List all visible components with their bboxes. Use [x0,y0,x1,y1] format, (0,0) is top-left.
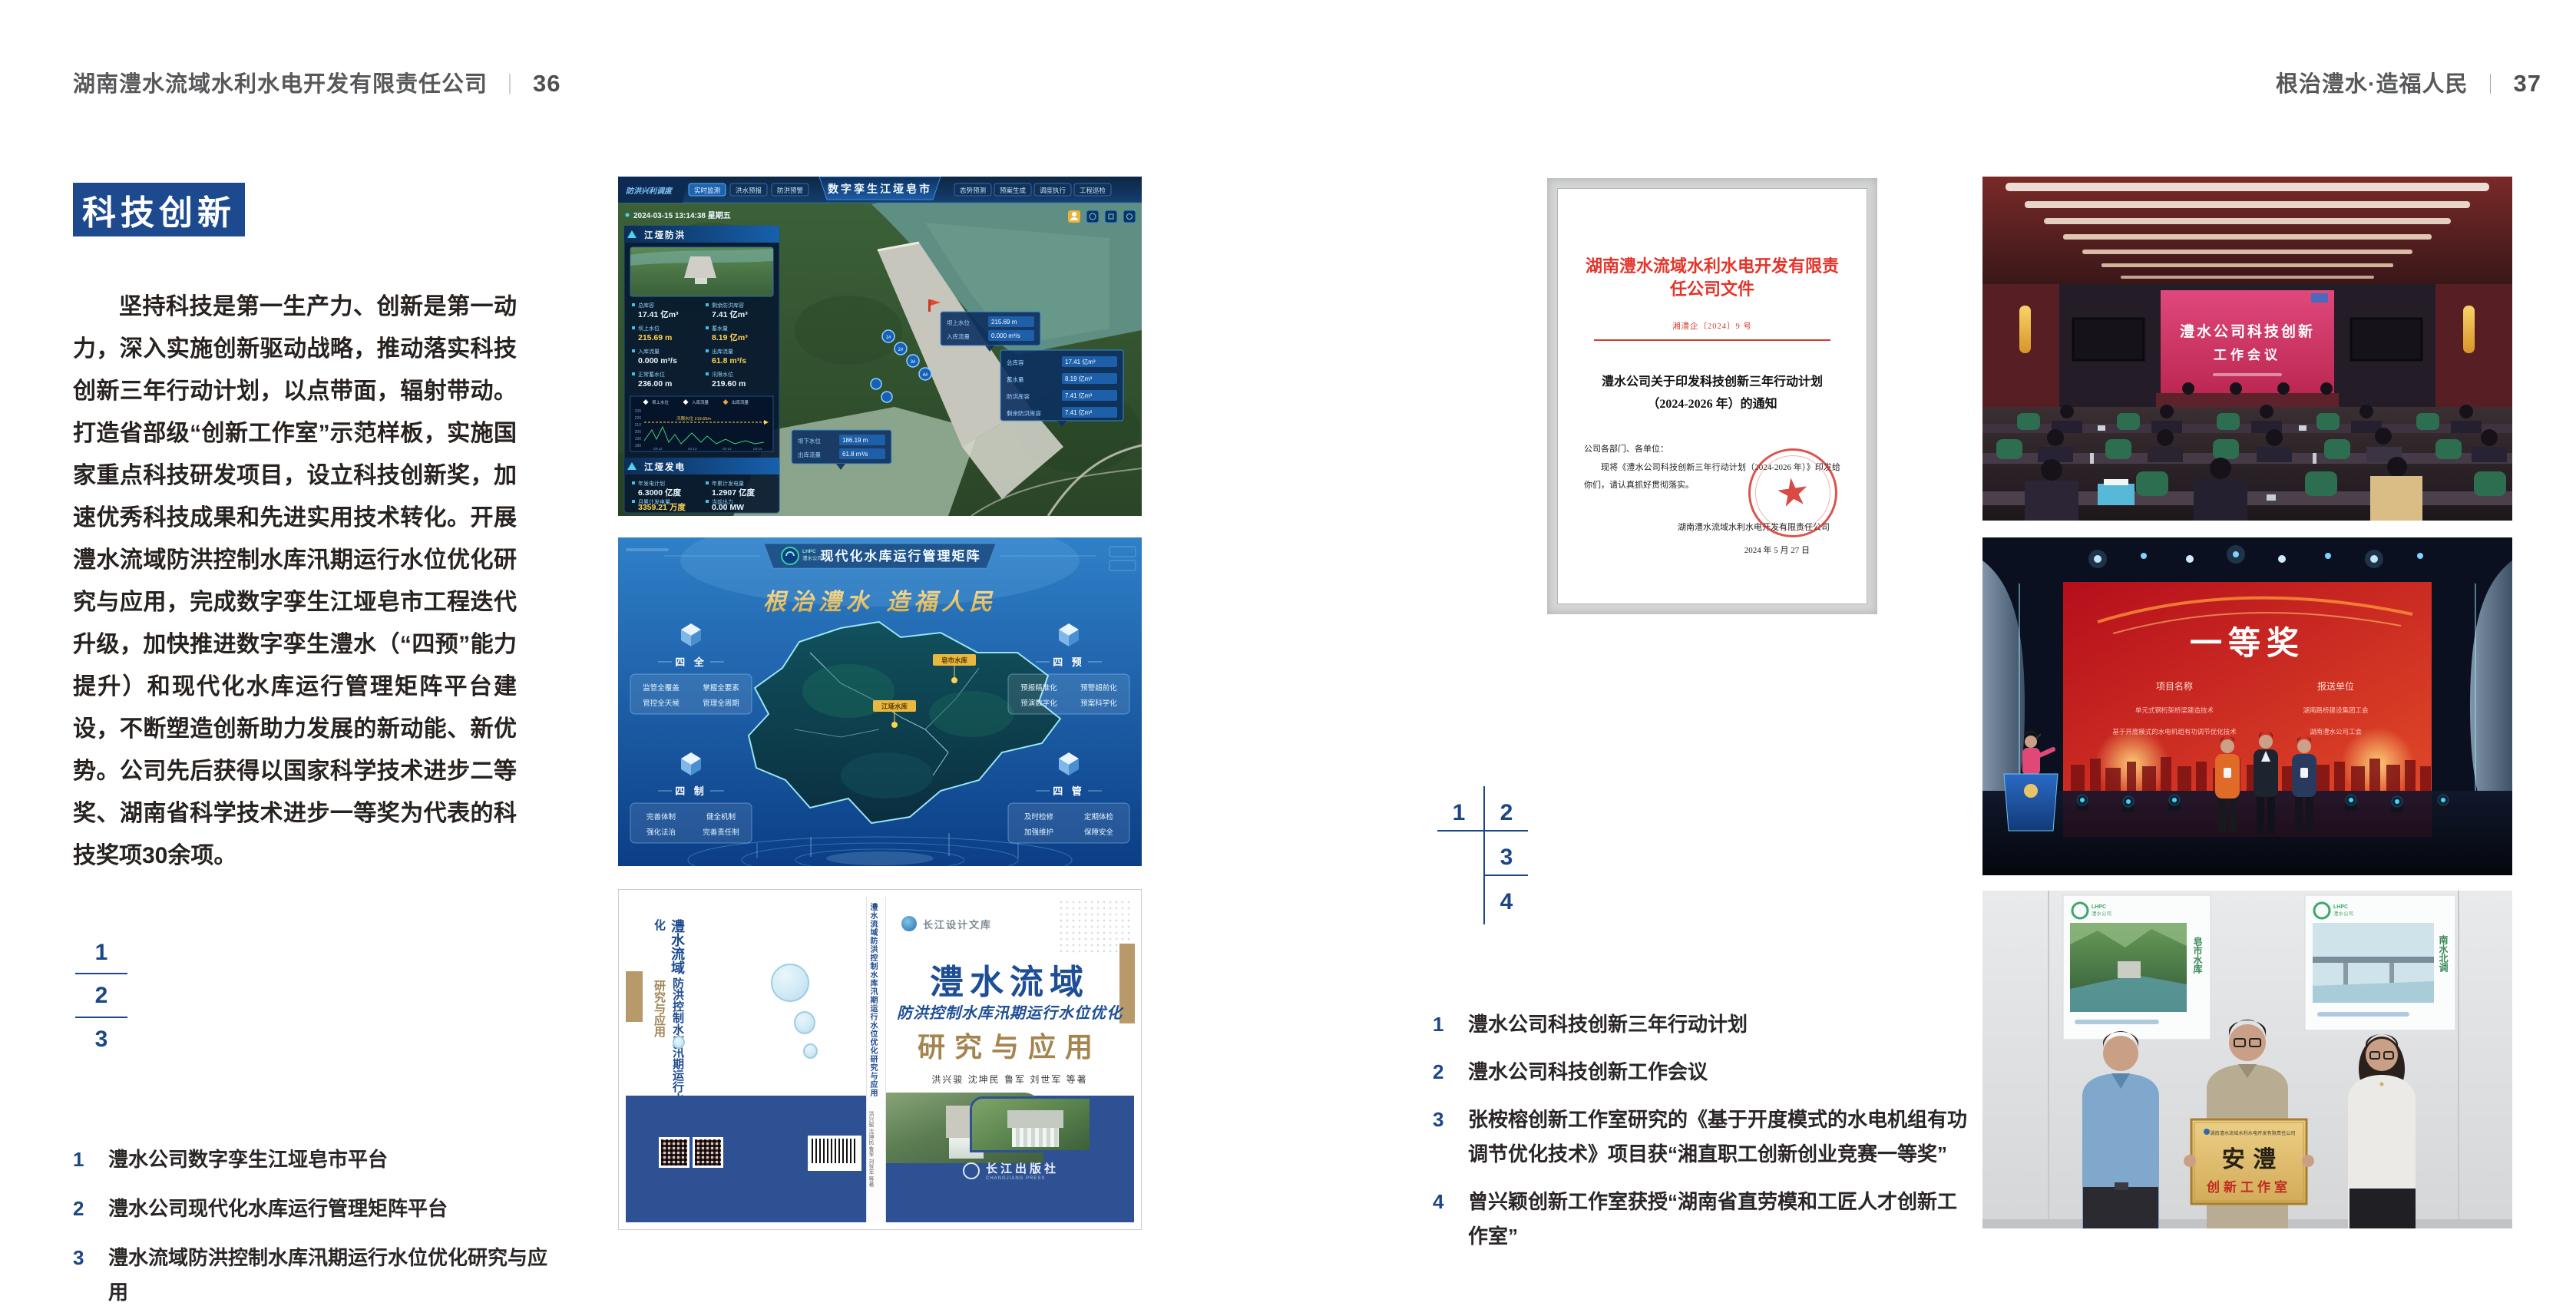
svg-text:工程巡检: 工程巡检 [1080,187,1106,194]
svg-text:江垭水库: 江垭水库 [881,703,908,710]
svg-text:皂市水库: 皂市水库 [941,656,968,664]
wall-tv [2073,319,2144,360]
svg-text:4#: 4# [923,373,928,378]
caption-text: 澧水公司数字孪生江垭皂市平台 [108,1142,388,1177]
caption-text: 澧水公司科技创新工作会议 [1468,1055,1708,1089]
svg-text:出库流量: 出库流量 [798,451,821,458]
svg-text:03-14: 03-14 [753,447,762,451]
bubble-decoration [803,1043,818,1059]
svg-text:监管全覆盖: 监管全覆盖 [643,683,680,693]
wall-sconce [2019,306,2031,353]
qr-code [693,1137,723,1168]
document-title-line1: 澧水公司关于印发科技创新三年行动计划 [1584,372,1840,394]
bubble-decoration [794,1011,815,1034]
svg-text:220: 220 [635,416,642,421]
svg-text:190: 190 [635,437,642,441]
book-title: 澧水流域 [886,954,1133,1003]
bubble-decoration [771,964,809,1002]
svg-text:61.8 m³/s: 61.8 m³/s [842,451,868,458]
svg-text:四 预: 四 预 [1053,656,1085,668]
caption-row: 1澧水公司科技创新三年行动计划 [1433,1007,1970,1042]
caption-row: 2澧水公司现代化水库运行管理矩阵平台 [73,1192,564,1226]
svg-text:剩余防洪库容: 剩余防洪库容 [712,302,744,309]
svg-text:蓄水量: 蓄水量 [1007,375,1024,383]
poster-left: LHPC 澧水公司 皂市水库 [2063,895,2211,1040]
caption-row: 2澧水公司科技创新工作会议 [1433,1055,1970,1089]
figure-number: 2 [95,983,108,1008]
svg-text:预演数字化: 预演数字化 [1020,699,1057,708]
spine-authors: 洪兴骏 沈坤民 鲁军 刘世军 等著 [867,1103,875,1187]
svg-text:200: 200 [635,430,642,435]
svg-text:完善责任制: 完善责任制 [703,828,739,837]
svg-text:1#: 1# [886,336,891,340]
tab-project-inspection[interactable]: 工程巡检 [1074,184,1111,196]
caption-row: 4曾兴颖创新工作室获授“湖南省直劳模和工匠人才创新工作室” [1433,1185,1970,1254]
figure-conference-photo: 澧水公司科技创新 工作会议 [1982,177,2512,521]
svg-text:6.3000 亿度: 6.3000 亿度 [638,488,682,498]
caption-text: 澧水公司科技创新三年行动计划 [1468,1007,1748,1042]
document-date: 2024 年 5 月 27 日 [1584,544,1840,556]
figure-matrix-platform: LHPC 澧水公司 现代化水库运行管理矩阵 根治澧水 造福人民 皂市水库 [618,537,1142,866]
svg-text:坝上水位: 坝上水位 [638,325,660,332]
caption-number: 1 [73,1142,93,1177]
publisher-logo-icon [963,1162,980,1179]
svg-text:总库容: 总库容 [1007,359,1024,366]
svg-text:完善体制: 完善体制 [646,812,676,822]
downstream-tooltip: 坝下水位 186.19 m 出库流量 61.8 m³/s [792,430,891,470]
svg-text:坝上水位: 坝上水位 [947,319,970,326]
dashboard-title: 数字孪生江垭皂市 [828,183,932,195]
caption-number: 3 [73,1241,93,1306]
plaque-subtitle: 创新工作室 [2206,1179,2291,1195]
column-header-project: 项目名称 [2156,680,2193,692]
svg-text:汛限水位 219.60m: 汛限水位 219.60m [676,415,711,422]
svg-text:2024-03-15 13:14:38 星期五: 2024-03-15 13:14:38 星期五 [633,210,731,220]
matrix-logo: LHPC [802,549,816,554]
svg-text:预警超前化: 预警超前化 [1080,683,1117,693]
poster-left-title: 皂市水库 [2192,936,2203,974]
matrix-title: 现代化水库运行管理矩阵 [821,548,981,564]
svg-text:236.00 m: 236.00 m [638,379,672,388]
poster-logo: LHPC [2333,904,2348,910]
svg-text:215.69 m: 215.69 m [991,319,1017,326]
header-separator: ｜ [2481,73,2502,96]
svg-text:四 全: 四 全 [675,656,707,668]
publisher-name: 长江出版社 [986,1160,1059,1176]
svg-text:洪水预报: 洪水预报 [736,187,762,194]
dashboard-header-bar: 防洪兴利调度 数字孪生江垭皂市 实时监测 洪水预报 防洪预警 态势预测 预案生成… [618,177,1142,203]
screen-title-line1: 澧水公司科技创新 [2180,322,2315,340]
document-title-line2: （2024-2026 年）的通知 [1584,394,1840,416]
publisher-logo: 长江出版社 CHANGJIANG PRESS [963,1160,1059,1181]
figure-official-document: 湖南澧水流域水利水电开发有限责任公司文件 湘澧企〔2024〕9 号 澧水公司关于… [1547,178,1877,614]
tab-plan-generation[interactable]: 预案生成 [994,184,1031,196]
figure-number: 3 [95,1027,108,1052]
svg-text:蓄水量: 蓄水量 [712,325,728,332]
tissue-box [2098,484,2135,505]
barcode [808,1136,861,1171]
poster-logo-sub: 澧水公司 [2092,910,2111,917]
cover-photo-spillway-dam [972,1099,1090,1150]
svg-text:出库流量: 出库流量 [712,348,733,355]
svg-text:03-12: 03-12 [653,447,663,451]
svg-text:保障安全: 保障安全 [1084,828,1114,837]
svg-text:180: 180 [635,444,642,448]
figure-plaque-photo: LHPC 澧水公司 皂市水库 LHPC 澧水公司 南水北调 [1982,891,2512,1228]
bubble-decoration [673,1036,685,1049]
layers-icon[interactable] [1086,210,1099,223]
poster-logo-sub: 澧水公司 [2333,910,2353,917]
settings-icon[interactable] [1123,210,1136,223]
svg-text:及时检修: 及时检修 [1024,812,1054,822]
tab-dispatch-execution[interactable]: 调度执行 [1034,184,1071,196]
plaque-header: 湖南澧水流域水利水电开发有限责任公司 [2210,1130,2295,1136]
caption-row: 3张桉榕创新工作室研究的《基于开度模式的水电机组有功调节优化技术》项目获“湘直职… [1433,1103,1970,1172]
svg-text:正常蓄水位: 正常蓄水位 [638,371,665,378]
caption-number: 2 [73,1192,93,1226]
back-subtitle2: 研究与应用 [648,934,670,1037]
svg-text:186.19 m: 186.19 m [842,437,868,444]
svg-text:219.60 m: 219.60 m [712,379,746,388]
spine-title: 澧水流域防洪控制水库汛期运行水位优化研究与应用 [867,903,878,1097]
wall-tv [2351,319,2422,360]
svg-text:17.41 亿m³: 17.41 亿m³ [638,309,679,319]
back-accent-bar [626,971,643,1022]
right-figure-index: 1 2 3 4 [1436,785,1536,931]
svg-text:3#: 3# [911,360,916,365]
left-page-number: 36 [533,70,561,97]
svg-text:7.41 亿m³: 7.41 亿m³ [1065,392,1092,399]
svg-text:0.000 m³/s: 0.000 m³/s [991,332,1020,339]
svg-text:防洪库容: 防洪库容 [1007,392,1030,400]
plaque-name: 安 澧 [2222,1146,2276,1173]
svg-text:7.41 亿m³: 7.41 亿m³ [712,309,748,319]
poster-right-title: 南水北调 [2438,934,2449,973]
figure-number: 1 [95,940,108,965]
series-logo: 长江设计文库 [901,916,992,931]
locate-icon[interactable] [1105,210,1117,223]
wall-sconce [2463,306,2475,353]
caption-text: 张桉榕创新工作室研究的《基于开度模式的水电机组有功调节优化技术》项目获“湘直职工… [1468,1103,1970,1172]
tab-flood-forecast[interactable]: 洪水预报 [730,184,767,196]
caption-text: 澧水流域防洪控制水库汛期运行水位优化研究与应用 [108,1241,564,1306]
panel-title: 江垭防洪 [644,230,686,240]
svg-text:调度执行: 调度执行 [1040,187,1066,194]
caption-number: 3 [1433,1103,1453,1172]
svg-text:出库流量: 出库流量 [732,399,749,405]
tab-situation-forecast[interactable]: 态势预测 [954,184,991,196]
header-separator: ｜ [500,73,521,96]
left-captions: 1澧水公司数字孪生江垭皂市平台 2澧水公司现代化水库运行管理矩阵平台 3澧水流域… [73,1142,564,1306]
svg-text:1.2907 亿度: 1.2907 亿度 [712,488,756,498]
award-row-unit: 湖南澧水公司工会 [2310,728,2363,736]
module-label: 防洪兴利调度 [626,187,673,196]
caption-row: 1澧水公司数字孪生江垭皂市平台 [73,1142,564,1177]
water-level-chart: 坝上水位 入库流量 出库流量 230 220 210 200 190 180 汛… [630,396,773,451]
right-page-number: 37 [2514,70,2541,97]
caption-number: 1 [1433,1007,1453,1042]
caption-number: 4 [1433,1185,1453,1254]
matrix-logo-sub: 澧水公司 [802,554,822,561]
svg-text:预报精准化: 预报精准化 [1020,683,1057,693]
series-name: 长江设计文库 [923,917,992,931]
flood-control-panel: 江垭防洪 总库容 17.41 亿m³ 剩余防洪库容 7.41 亿m³ 坝上水位 … [624,226,779,513]
svg-text:03-13: 03-13 [688,447,697,451]
document-title: 澧水公司关于印发科技创新三年行动计划 （2024-2026 年）的通知 [1584,372,1840,416]
svg-text:0.00 MW: 0.00 MW [712,503,744,512]
screen-title-line2: 工作会议 [2214,347,2281,362]
svg-text:0.000 m³/s: 0.000 m³/s [638,356,677,365]
svg-text:实时监测: 实时监测 [694,187,720,194]
right-captions: 1澧水公司科技创新三年行动计划 2澧水公司科技创新工作会议 3张桉榕创新工作室研… [1433,1007,1970,1254]
svg-text:61.8 m³/s: 61.8 m³/s [712,356,746,365]
svg-text:剩余防洪库容: 剩余防洪库容 [1007,409,1041,417]
column-header-unit: 报送单位 [2317,680,2354,692]
book-authors: 洪兴骏 沈坤民 鲁军 刘世军 等著 [886,1073,1133,1086]
svg-text:管控全天候: 管控全天候 [643,699,680,708]
svg-text:8.19 亿m³: 8.19 亿m³ [1065,375,1092,382]
svg-text:加强维护: 加强维护 [1024,828,1053,837]
svg-text:汛限水位: 汛限水位 [712,371,733,378]
document-page: 湖南澧水流域水利水电开发有限责任公司文件 湘澧企〔2024〕9 号 澧水公司关于… [1557,188,1867,604]
svg-text:态势预测: 态势预测 [960,187,986,194]
brochure-spread: 湖南澧水流域水利水电开发有限责任公司｜36 根治澧水·造福人民｜37 科技创新 … [0,0,2576,1306]
svg-text:定期体检: 定期体检 [1084,812,1114,822]
conference-screen: 澧水公司科技创新 工作会议 [2161,290,2334,393]
svg-text:四 管: 四 管 [1053,785,1085,797]
figure-award-ceremony-photo: 一等奖 项目名称 报送单位 单元式钢桁架桥梁建造技术 湖南路桥建设集团工会 基于… [1982,537,2512,875]
caption-text: 澧水公司现代化水库运行管理矩阵平台 [108,1192,448,1226]
innovation-plaque: 湖南澧水流域水利水电开发有限责任公司 安 澧 创新工作室 [2184,1119,2314,1204]
svg-text:7.41 亿m³: 7.41 亿m³ [1065,408,1092,416]
section-badge: 科技创新 [73,183,245,236]
svg-text:管理全周期: 管理全周期 [703,699,739,708]
publisher-name-en: CHANGJIANG PRESS [986,1176,1059,1181]
poster-right: LHPC 澧水公司 南水北调 [2305,895,2455,1030]
svg-text:四 制: 四 制 [675,785,707,797]
figure-digital-twin-dashboard: 防洪兴利调度 数字孪生江垭皂市 实时监测 洪水预报 防洪预警 态势预测 预案生成… [618,177,1142,516]
caption-row: 3澧水流域防洪控制水库汛期运行水位优化研究与应用 [73,1241,564,1306]
podium [2004,774,2058,831]
svg-text:坝上水位: 坝上水位 [652,399,670,405]
figure-number: 3 [1500,845,1513,870]
dam-thumbnail [630,247,773,296]
svg-text:年累计发电量: 年累计发电量 [712,480,744,487]
dashboard-datetime: 2024-03-15 13:14:38 星期五 [626,210,731,220]
body-paragraph: 坚持科技是第一生产力、创新是第一动力，深入实施创新驱动战略，推动落实科技创新三年… [73,286,517,877]
figure-number: 1 [1453,800,1466,825]
prize-title: 一等奖 [2190,624,2305,662]
caption-text: 曾兴颖创新工作室获授“湖南省直劳模和工匠人才创新工作室” [1468,1185,1970,1254]
svg-text:健全机制: 健全机制 [706,812,736,822]
panel-title: 江垭发电 [644,461,686,472]
svg-text:230: 230 [635,409,642,414]
caption-number: 2 [1433,1055,1453,1089]
book-spine: 澧水流域防洪控制水库汛期运行水位优化研究与应用 洪兴骏 沈坤民 鲁军 刘世军 等… [866,897,886,1222]
svg-text:预案生成: 预案生成 [1000,187,1027,194]
tab-flood-warning[interactable]: 防洪预警 [772,184,809,196]
svg-text:2#: 2# [898,348,904,352]
upstream-tooltip: 坝上水位 215.69 m 入库流量 0.000 m³/s [941,312,1040,352]
right-page-header: 根治澧水·造福人民｜37 [2276,66,2541,98]
svg-text:入库流量: 入库流量 [692,399,709,405]
qr-code [659,1137,689,1168]
document-masthead: 湖南澧水流域水利水电开发有限责任公司文件 [1584,255,1840,300]
svg-text:入库流量: 入库流量 [947,332,970,340]
award-row-unit: 湖南路桥建设集团工会 [2303,706,2369,714]
svg-text:防洪预警: 防洪预警 [777,187,804,194]
svg-text:强化法治: 强化法治 [646,828,676,837]
svg-text:17.41 亿m³: 17.41 亿m³ [1065,358,1096,365]
svg-text:掌握全要素: 掌握全要素 [703,683,739,693]
svg-text:预案科学化: 预案科学化 [1080,699,1117,708]
right-header-title: 根治澧水·造福人民 [2276,72,2469,97]
figure-number: 2 [1500,800,1513,825]
svg-text:坝下水位: 坝下水位 [798,437,821,445]
book-subtitle2: 研究与应用 [886,1025,1133,1065]
tab-realtime-monitor[interactable]: 实时监测 [689,184,726,196]
document-rule [1594,339,1830,341]
document-number: 湘澧企〔2024〕9 号 [1584,320,1840,332]
matrix-slogan: 根治澧水 造福人民 [763,589,997,616]
figure-number: 4 [1500,889,1513,914]
poster-logo: LHPC [2092,904,2106,910]
capacity-tooltip: 总库容 17.41 亿m³ 蓄水量 8.19 亿m³ 防洪库容 7.41 亿m³… [1000,350,1123,427]
award-row-project: 基于开度模式的水电机组有功调节优化技术 [2112,728,2237,736]
left-header-title: 湖南澧水流域水利水电开发有限责任公司 [73,72,488,97]
svg-text:210: 210 [635,423,642,428]
figure-book-cover: 澧水流域 防洪控制水库汛期运行水位优化 研究与应用 澧水流域防洪控制水库汛期运行… [618,889,1142,1230]
svg-text:3359.21 万度: 3359.21 万度 [638,502,686,512]
series-logo-icon [901,916,917,931]
svg-text:8.19 亿m³: 8.19 亿m³ [712,332,748,342]
left-page-header: 湖南澧水流域水利水电开发有限责任公司｜36 [73,66,561,98]
svg-text:03-13: 03-13 [723,447,732,451]
svg-text:年发电计划: 年发电计划 [638,480,665,487]
led-screen: 一等奖 项目名称 报送单位 单元式钢桁架桥梁建造技术 湖南路桥建设集团工会 基于… [2063,582,2432,801]
left-figure-index: 1 2 3 [71,938,132,1053]
award-row-project: 单元式钢桁架桥梁建造技术 [2135,706,2214,714]
book-subtitle: 防洪控制水库汛期运行水位优化 [886,1000,1133,1023]
svg-text:入库流量: 入库流量 [638,348,660,355]
svg-text:215.69 m: 215.69 m [638,333,672,342]
svg-text:总库容: 总库容 [638,302,654,309]
